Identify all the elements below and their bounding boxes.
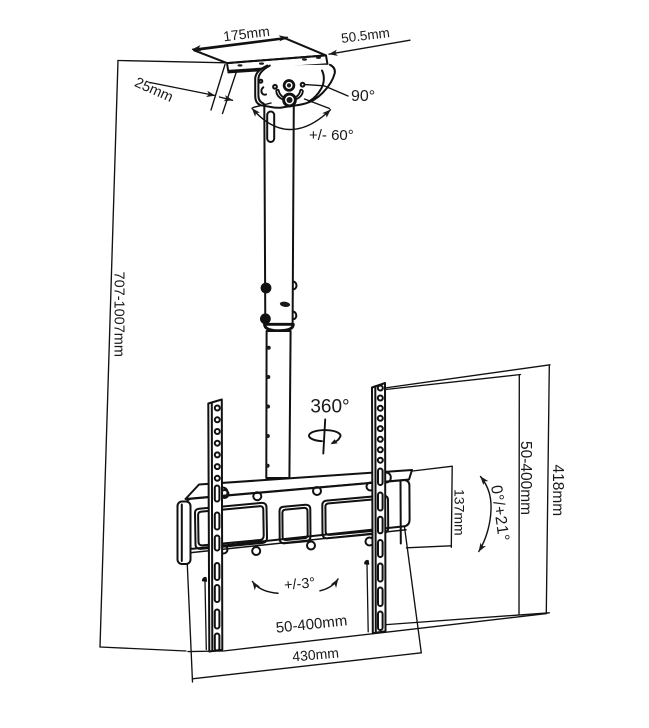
svg-text:418mm: 418mm bbox=[549, 465, 566, 517]
svg-text:25mm: 25mm bbox=[132, 75, 175, 106]
svg-text:50-400mm: 50-400mm bbox=[517, 441, 534, 515]
svg-text:50-400mm: 50-400mm bbox=[275, 612, 348, 636]
svg-text:+/- 60°: +/- 60° bbox=[309, 127, 354, 144]
svg-text:360°: 360° bbox=[310, 397, 349, 418]
svg-text:707-1007mm: 707-1007mm bbox=[111, 272, 127, 357]
svg-text:430mm: 430mm bbox=[292, 645, 340, 665]
svg-text:137mm: 137mm bbox=[452, 489, 468, 536]
svg-text:90°: 90° bbox=[351, 88, 375, 105]
svg-text:50.5mm: 50.5mm bbox=[340, 25, 390, 46]
svg-text:+/-3°: +/-3° bbox=[283, 575, 315, 594]
